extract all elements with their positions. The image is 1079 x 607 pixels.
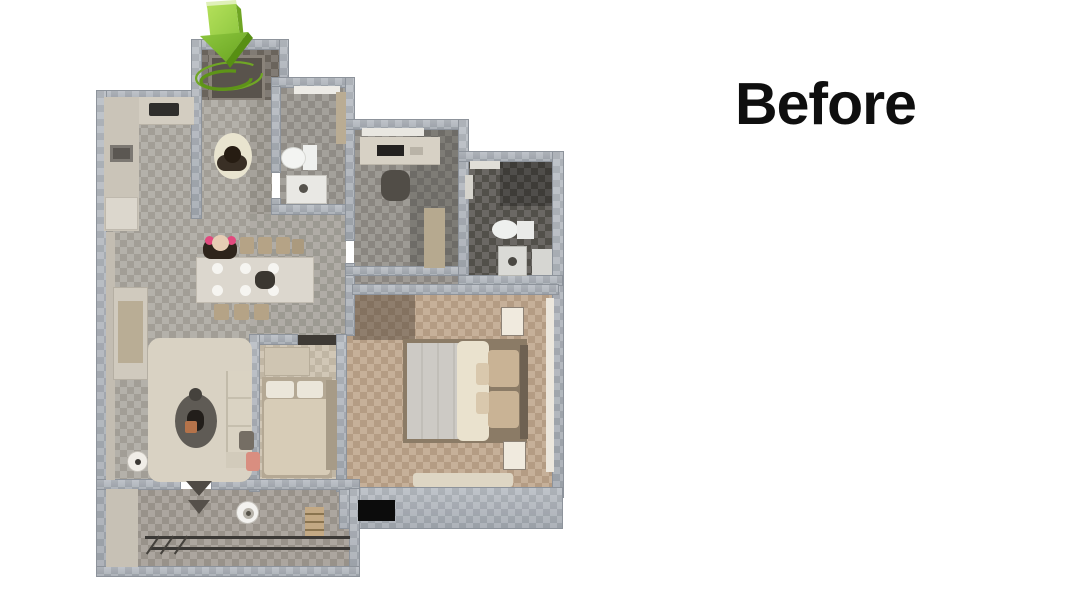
- study-cabinet: [424, 208, 445, 268]
- fridge: [105, 197, 138, 230]
- pink-chair: [246, 452, 260, 471]
- bed-bench: [413, 473, 513, 487]
- small-bedroom-door-shadow: [297, 335, 337, 345]
- washer-door: [299, 184, 308, 193]
- small-bed-duvet: [264, 399, 330, 475]
- vanity-sink-drain: [508, 257, 517, 266]
- wall: [459, 276, 562, 285]
- desk-item: [410, 147, 423, 155]
- drying-line: [145, 536, 350, 539]
- stool: [239, 431, 254, 450]
- cooktop: [149, 103, 179, 116]
- bathroom1-window: [294, 86, 340, 94]
- dining-chair: [292, 239, 304, 254]
- table-centerpiece: [255, 271, 275, 289]
- bathroom2-door-frame: [465, 175, 473, 199]
- master-duvet: [407, 343, 461, 439]
- plate: [212, 285, 223, 296]
- dining-chair: [240, 237, 254, 254]
- wall: [346, 267, 459, 275]
- toilet-bowl: [281, 147, 306, 169]
- dining-chair: [214, 304, 229, 320]
- kettle: [189, 388, 202, 401]
- master-curtain: [546, 298, 554, 472]
- wall: [272, 87, 280, 172]
- balcony-ladder: [305, 507, 324, 536]
- person-standing-head: [224, 146, 241, 163]
- floor-cushion: [185, 421, 197, 433]
- dining-chair: [276, 237, 290, 254]
- shower-shadow: [500, 161, 553, 206]
- kitchen-sink-basin: [113, 148, 130, 159]
- bathroom1-cabinet: [336, 92, 346, 144]
- small-bed-pillow: [266, 381, 294, 398]
- master-door-shadow: [353, 294, 415, 340]
- nightstand: [501, 307, 524, 336]
- toilet2-bowl: [492, 220, 518, 239]
- nightstand: [503, 441, 526, 470]
- master-cushion: [476, 392, 489, 414]
- wall: [353, 285, 558, 294]
- plate: [240, 285, 251, 296]
- slide: Before: [0, 0, 1079, 607]
- wall: [346, 78, 354, 240]
- dining-chair: [234, 304, 249, 320]
- side-table-dot: [135, 459, 141, 465]
- plate: [240, 263, 251, 274]
- master-pillow: [488, 391, 519, 428]
- small-wardrobe: [326, 380, 337, 470]
- before-label: Before: [735, 74, 916, 136]
- floorplan: [0, 0, 1079, 607]
- wall: [97, 567, 359, 576]
- master-blanket: [457, 341, 489, 441]
- dining-chair: [258, 237, 272, 254]
- study-window: [362, 128, 424, 136]
- laptop: [377, 145, 404, 156]
- wall: [553, 152, 563, 497]
- wall: [459, 120, 468, 278]
- vanity-sink-2: [532, 249, 552, 275]
- dining-chair: [254, 304, 269, 320]
- master-window-dark: [358, 500, 395, 521]
- small-bed-pillow: [297, 381, 323, 398]
- small-bedroom-shelf: [264, 347, 310, 376]
- door-shadow-triangle: [186, 481, 212, 496]
- bathroom2-door: [470, 161, 500, 169]
- wall: [459, 152, 561, 161]
- wall: [337, 335, 346, 491]
- headboard: [520, 345, 528, 439]
- desk-chair: [381, 170, 410, 201]
- entrance-arrow-icon: [190, 0, 274, 96]
- master-pillow: [488, 350, 519, 387]
- wall: [272, 205, 346, 214]
- person-seated-head: [212, 235, 229, 251]
- tv-cabinet-inset: [118, 301, 143, 363]
- door-shadow-triangle: [188, 500, 210, 514]
- master-cushion: [476, 363, 489, 385]
- toilet2-tank: [517, 221, 534, 239]
- balcony-marble-strip: [106, 489, 138, 567]
- balcony-fan-dot: [246, 511, 251, 516]
- plate: [212, 263, 223, 274]
